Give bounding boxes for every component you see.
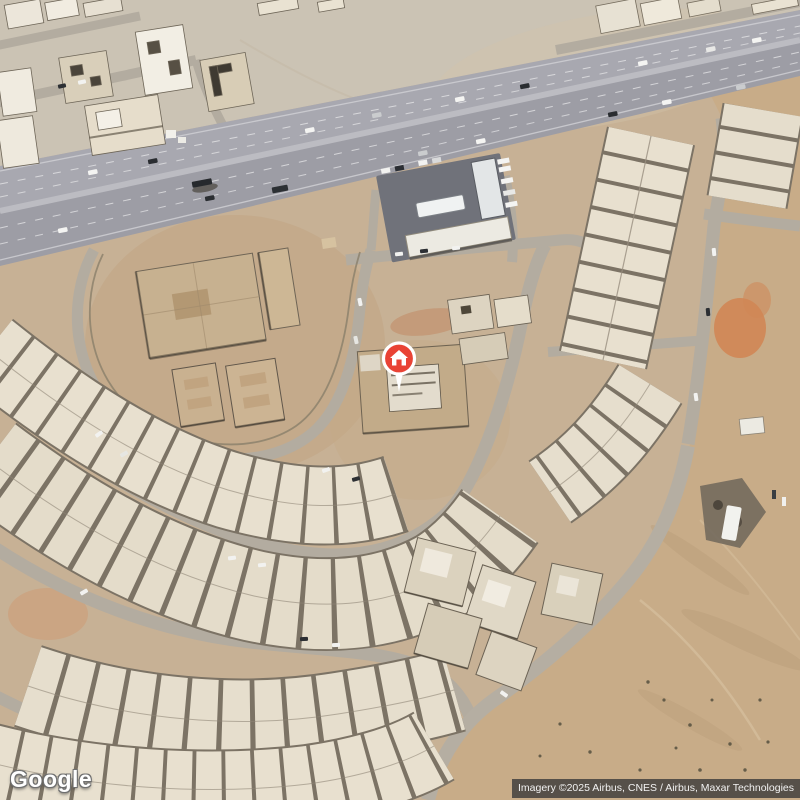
map-canvas[interactable]: Google Imagery ©2025 Airbus, CNES / Airb…	[0, 0, 800, 800]
school-block-west	[172, 363, 225, 427]
imagery-attribution: Imagery ©2025 Airbus, CNES / Airbus, Max…	[512, 779, 800, 798]
school-main-building	[136, 253, 266, 358]
satellite-imagery-layer	[0, 0, 800, 800]
home-icon	[380, 340, 418, 396]
home-marker[interactable]	[380, 340, 418, 396]
school-block-east	[226, 358, 285, 427]
google-logo[interactable]: Google	[10, 766, 92, 793]
